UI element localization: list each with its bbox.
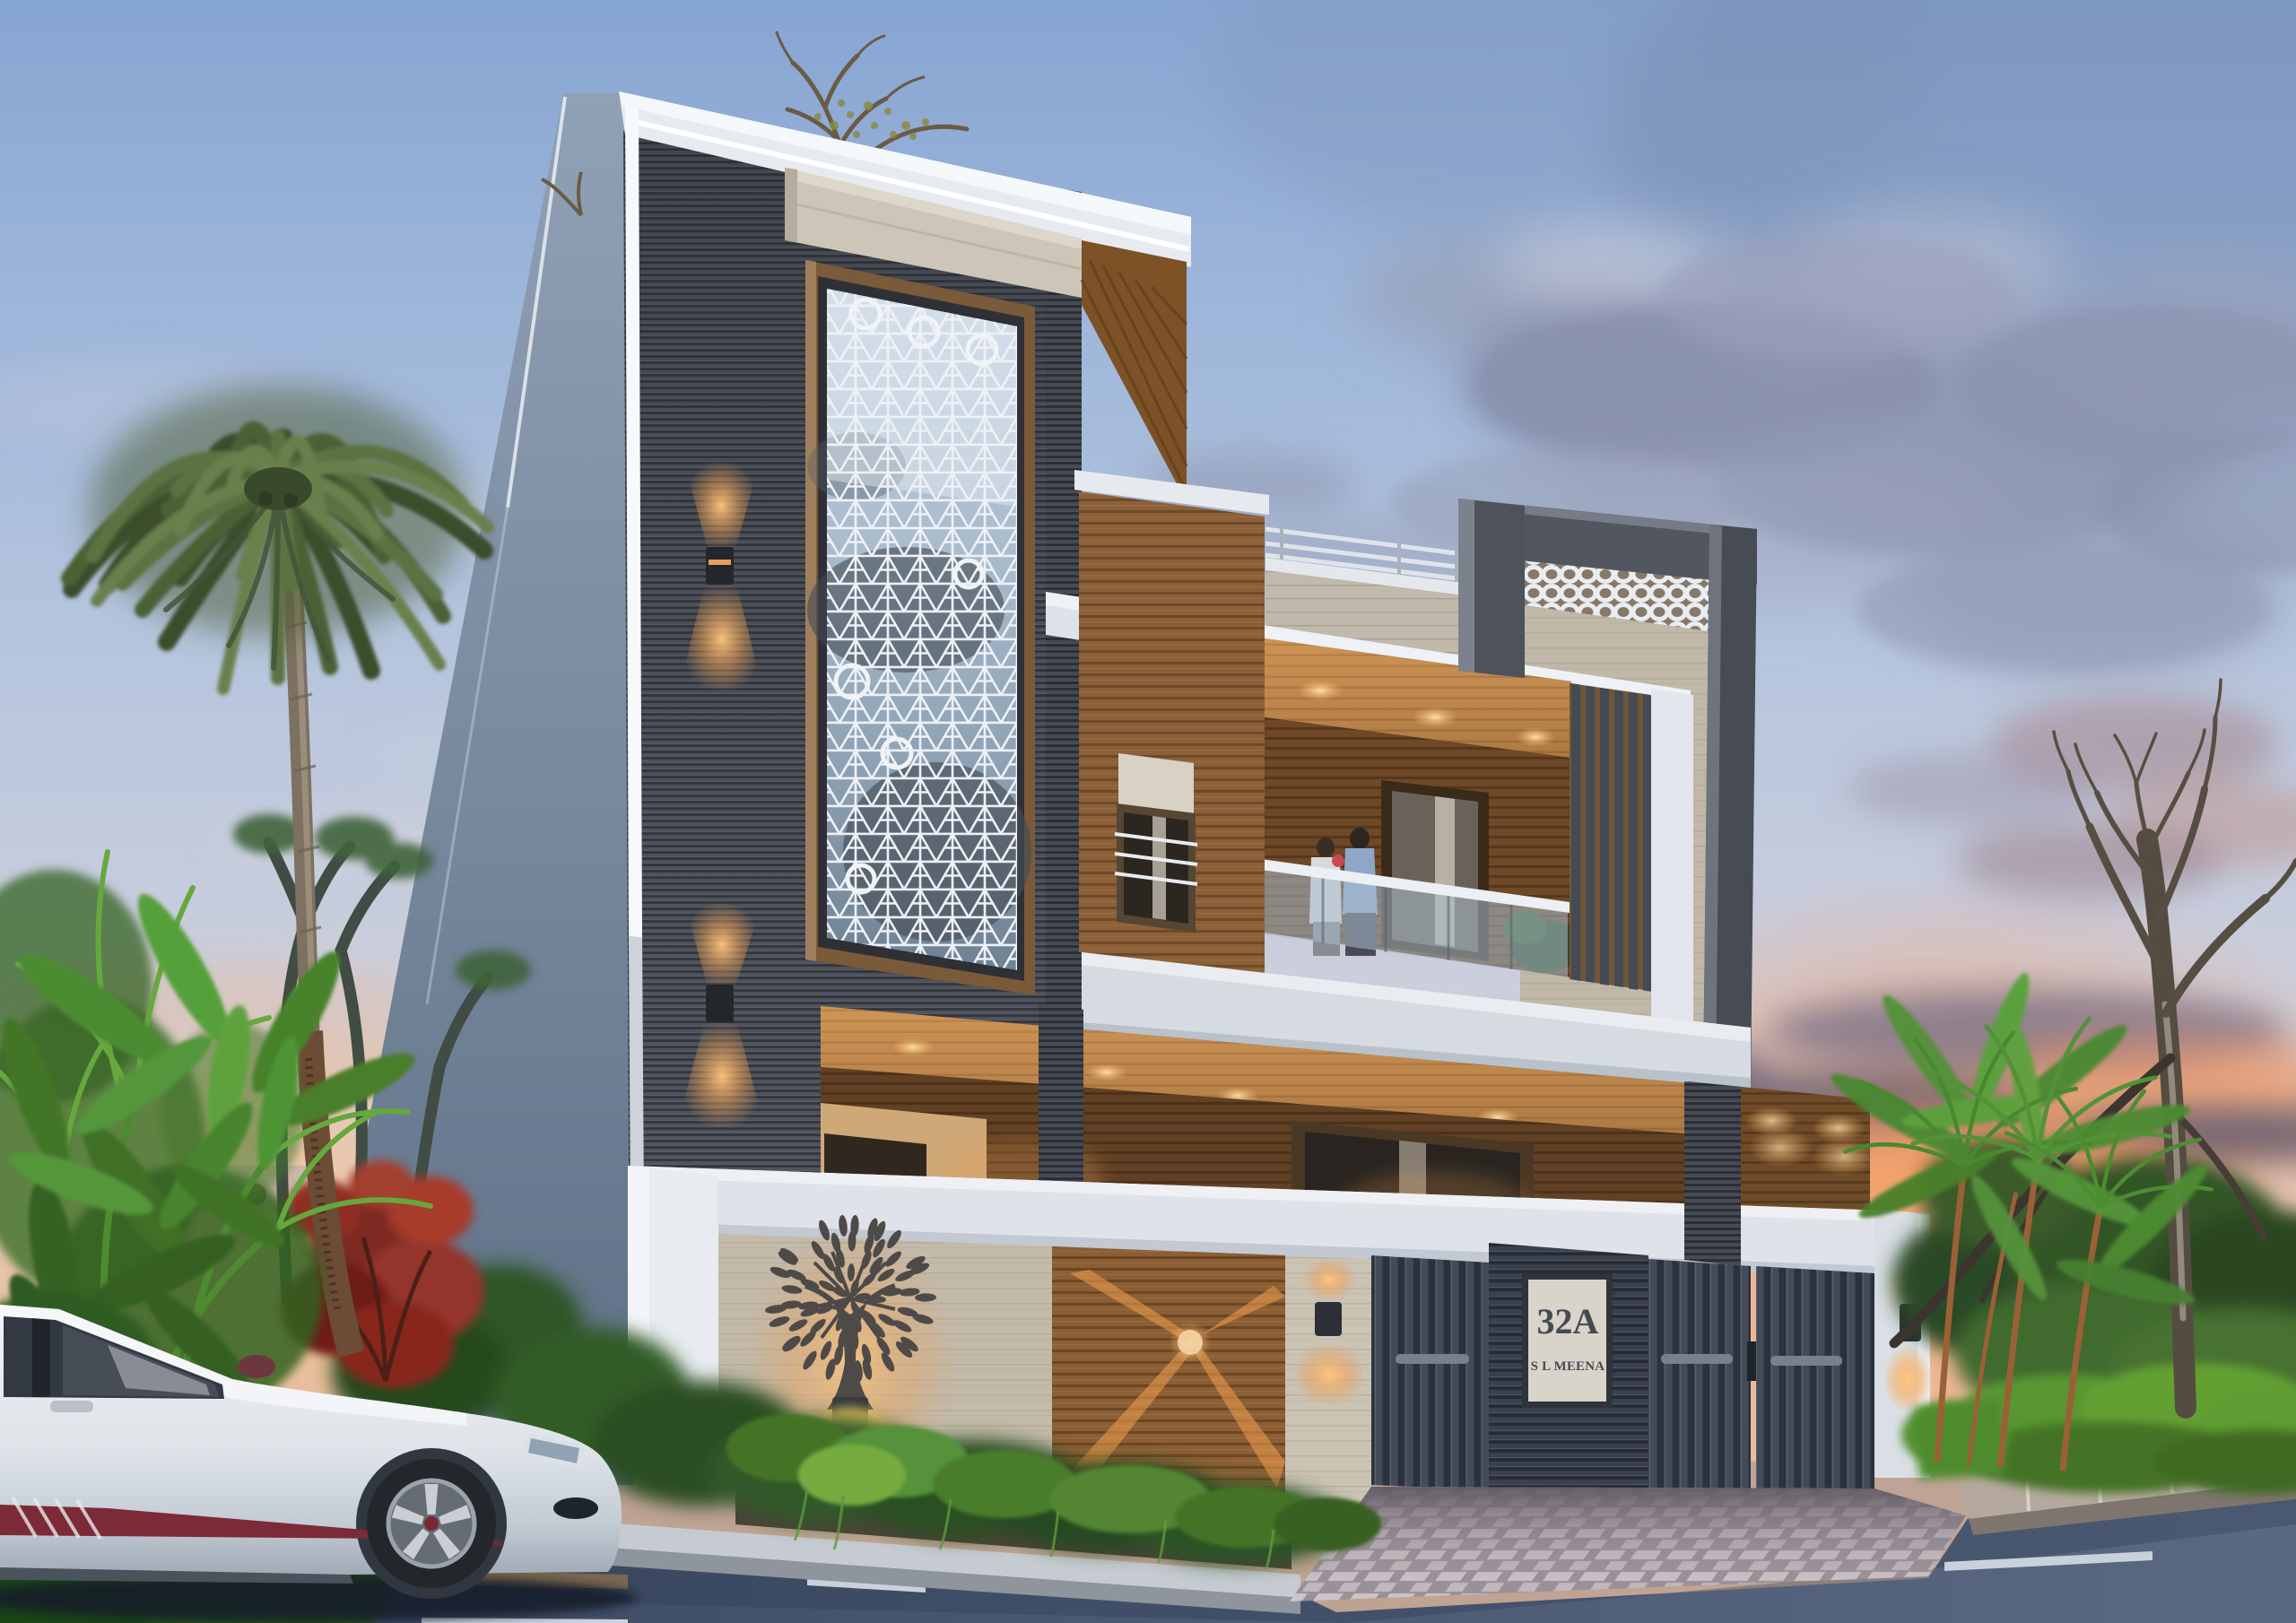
svg-text:32A: 32A (1537, 1301, 1599, 1341)
svg-text:S L MEENA: S L MEENA (1531, 1359, 1605, 1374)
